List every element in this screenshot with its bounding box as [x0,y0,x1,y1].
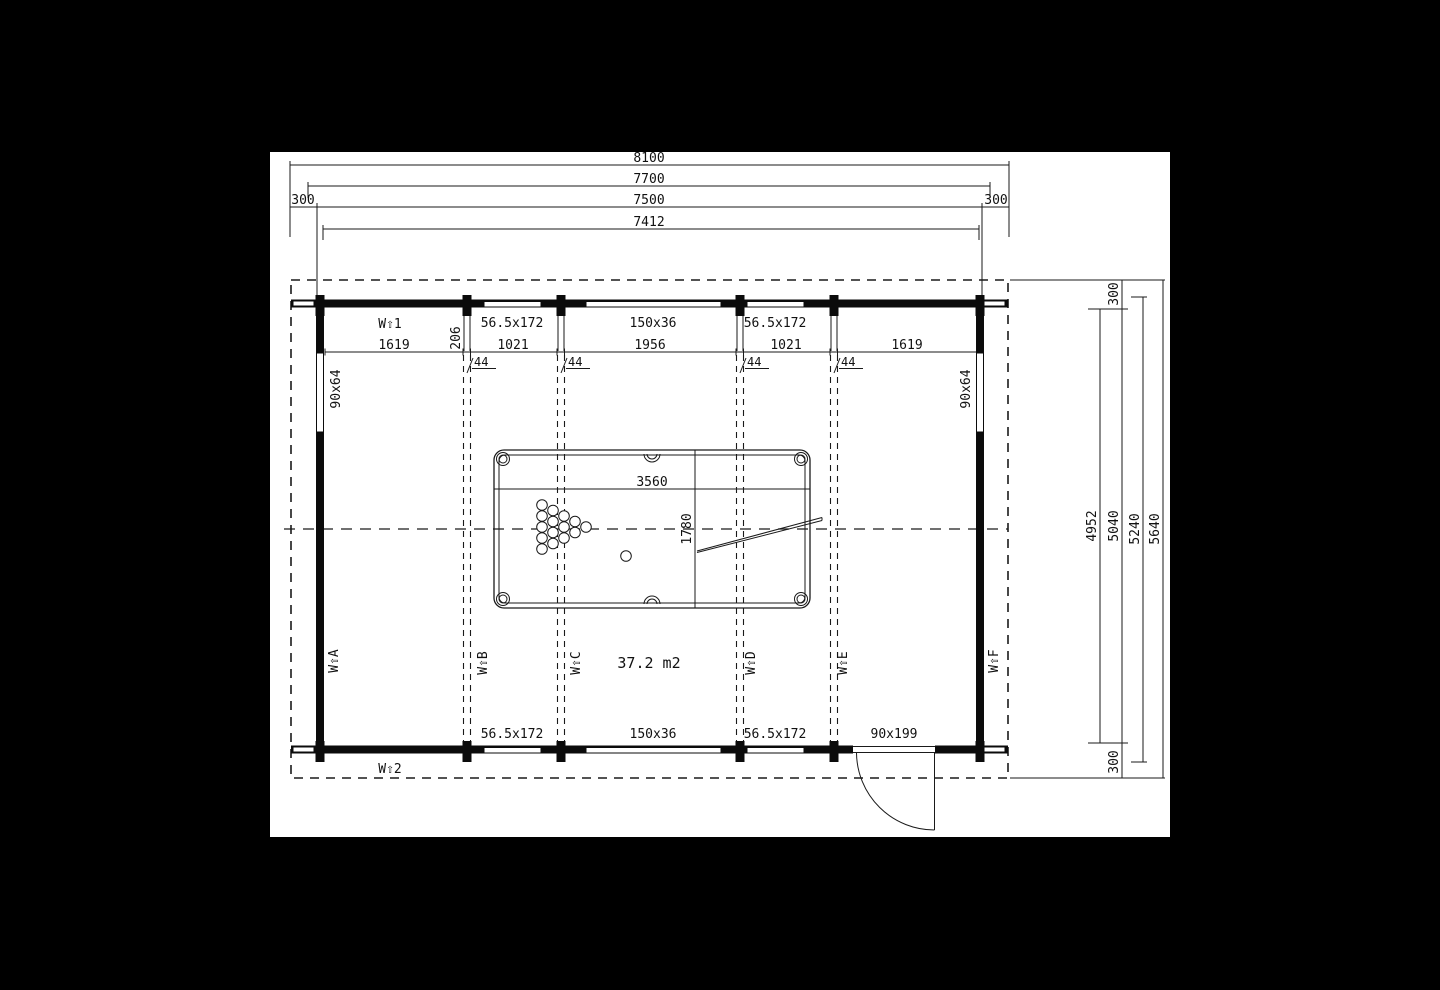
table-length-label: 3560 [636,475,667,490]
dim-7412-label: 7412 [633,215,664,230]
bottom-window-left [484,748,541,754]
dim-8100-label: 8100 [633,152,664,166]
dim-300-left-label: 300 [291,193,314,208]
post-dim-44-4: 44 [841,355,855,369]
cue-stick [697,518,822,553]
window-marker-wf: W⇧F [987,649,1002,673]
bottom-window-middle-size: 150x36 [630,727,677,742]
room-area-label: 37.2 m2 [617,654,680,672]
window-marker-wc: W⇧C [569,651,584,674]
window-marker-wa: W⇧A [327,649,342,673]
post-size-44-labels: 44 44 44 44 [467,355,863,373]
left-wall: 90x64 [316,300,344,754]
window-marker-w2: W⇧2 [378,762,401,777]
bay-dim-1021-left: 1021 [497,338,528,353]
post-dim-44-2: 44 [568,355,582,369]
bay-dim-1956: 1956 [634,338,665,353]
dim-5640-label: 5640 [1148,513,1163,544]
bottom-window-right-size: 56.5x172 [744,727,807,742]
table-width-label: 1780 [680,513,695,544]
bay-dim-1619-right: 1619 [891,338,922,353]
top-window-right [747,302,804,308]
post-dim-44-3: 44 [747,355,761,369]
post-axis-lines [464,355,838,745]
top-window-middle-size: 150x36 [630,316,677,331]
bay-dimension-line: 1619 206 1021 1956 1021 1619 44 44 44 44 [325,326,977,373]
door-size: 90x199 [871,727,918,742]
dim-4952-label: 4952 [1085,510,1100,541]
bay-dim-1619-left: 1619 [378,338,409,353]
floor-plan-drawing: 8100 7700 300 7500 300 7412 [270,152,1170,837]
top-window-left-size: 56.5x172 [481,316,544,331]
window-marker-w1: W⇧1 [378,317,401,332]
top-dimensions: 8100 7700 300 7500 300 7412 [290,152,1009,298]
top-window-left [484,302,541,308]
window-marker-wb: W⇧B [476,651,491,675]
top-window-middle [586,302,721,308]
pool-table: 3560 1780 [494,450,822,608]
door-swing [857,753,935,830]
right-window-size: 90x64 [959,369,974,408]
left-window-size: 90x64 [329,369,344,408]
cue-ball [621,551,632,562]
right-wall: 90x64 [959,300,984,754]
top-window-right-size: 56.5x172 [744,316,807,331]
room-labels: 37.2 m2 W⇧A W⇧B W⇧C W⇧D W⇧E W⇧F [327,649,1002,675]
window-marker-we: W⇧E [836,651,851,674]
bay-dim-206: 206 [449,326,464,349]
right-wall-window [977,353,984,432]
left-wall-window [317,353,324,432]
dim-5040-label: 5040 [1107,510,1122,541]
bay-dim-1021-right: 1021 [770,338,801,353]
right-dimensions: 4952 300 5040 300 5240 5640 [1010,280,1165,778]
bottom-window-right [747,748,804,754]
door [853,745,935,830]
dim-7500-label: 7500 [633,193,664,208]
dim-7700-label: 7700 [633,172,664,187]
dim-300-right-label: 300 [984,193,1007,208]
bottom-window-left-size: 56.5x172 [481,727,544,742]
floor-plan-sheet: 8100 7700 300 7500 300 7412 [270,152,1170,837]
dim-5240-label: 5240 [1128,513,1143,544]
dim-300-top-label: 300 [1107,282,1122,305]
window-marker-wd: W⇧D [744,651,759,675]
post-dim-44-1: 44 [474,355,488,369]
bottom-window-middle [586,748,721,754]
dim-300-bottom-label: 300 [1107,750,1122,773]
